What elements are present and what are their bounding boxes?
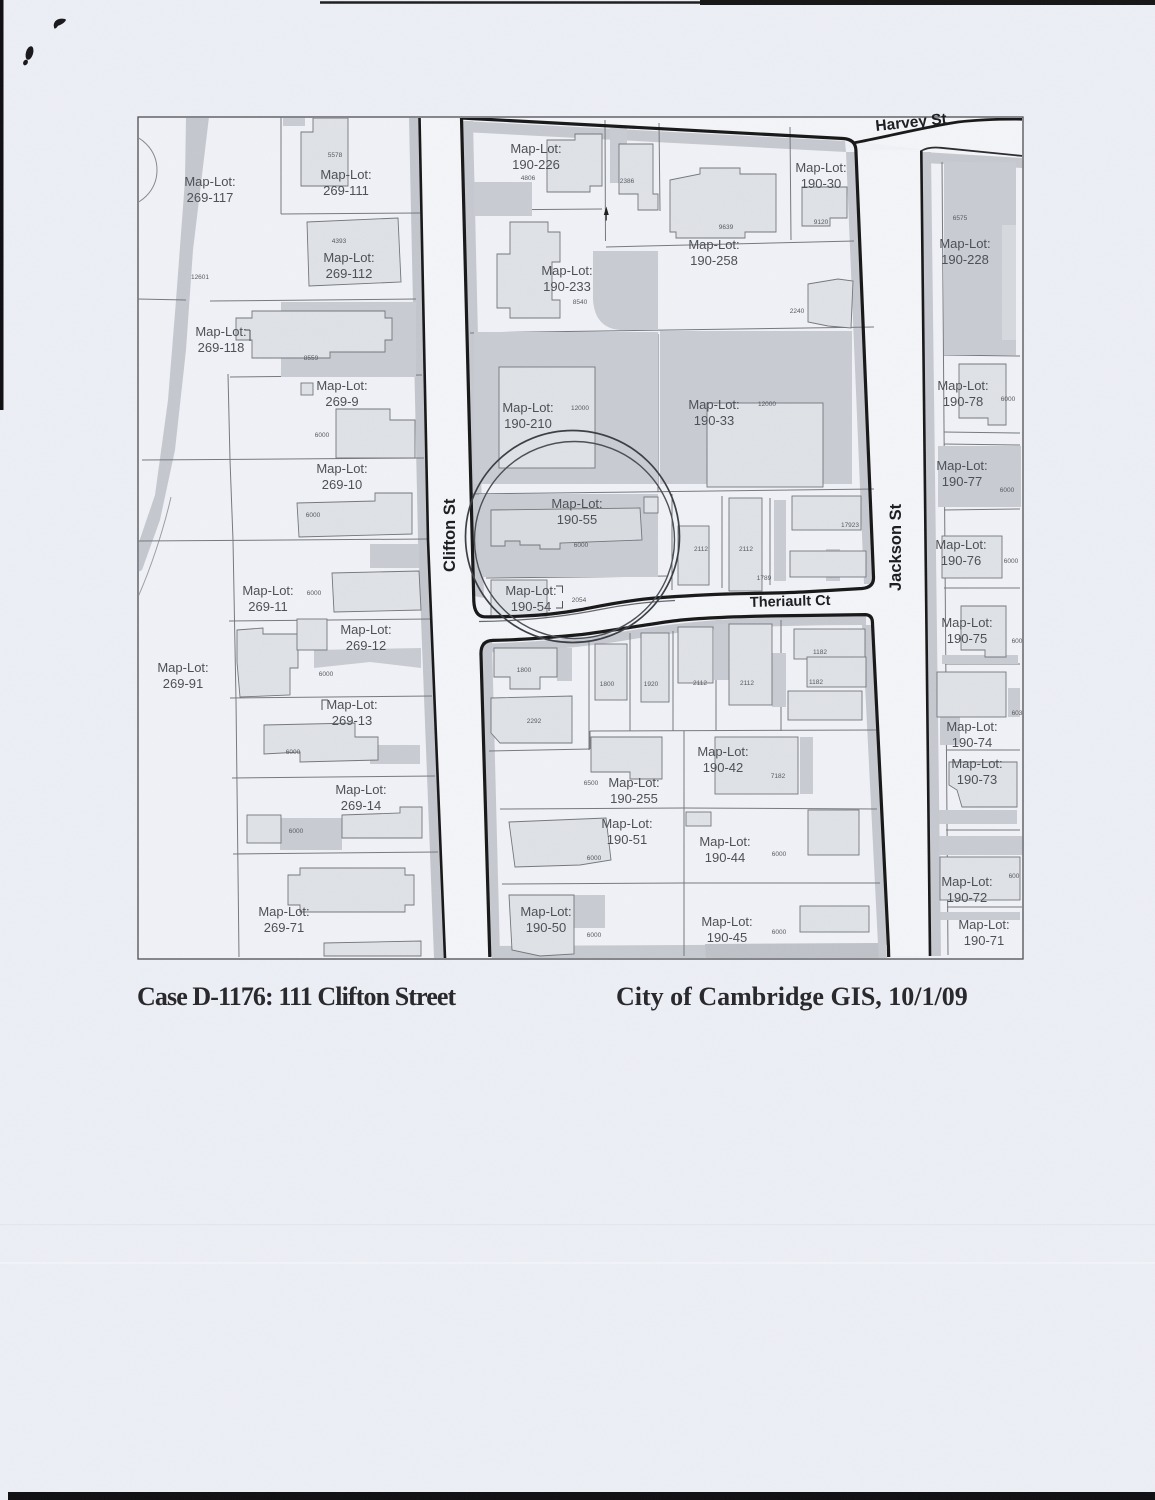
svg-text:1800: 1800 xyxy=(600,681,615,688)
svg-text:Map-Lot:190-226: Map-Lot:190-226 xyxy=(510,141,561,172)
svg-text:6575: 6575 xyxy=(953,215,968,222)
svg-text:Map-Lot:190-51: Map-Lot:190-51 xyxy=(601,816,652,847)
svg-text:2112: 2112 xyxy=(739,546,753,553)
svg-text:Map-Lot:269-12: Map-Lot:269-12 xyxy=(340,622,391,653)
svg-text:1182: 1182 xyxy=(809,679,823,686)
svg-text:2240: 2240 xyxy=(790,308,805,315)
svg-text:Map-Lot:190-44: Map-Lot:190-44 xyxy=(699,834,750,865)
svg-text:Map-Lot:190-76: Map-Lot:190-76 xyxy=(935,537,986,568)
svg-text:6000: 6000 xyxy=(772,929,787,936)
svg-text:6000: 6000 xyxy=(307,590,322,597)
svg-text:1182: 1182 xyxy=(813,649,827,656)
svg-text:6000: 6000 xyxy=(772,851,787,858)
svg-text:Map-Lot:190-74: Map-Lot:190-74 xyxy=(946,719,997,750)
svg-text:6000: 6000 xyxy=(587,932,602,939)
svg-text:1920: 1920 xyxy=(644,681,659,688)
svg-text:6000: 6000 xyxy=(1001,396,1016,403)
svg-text:Map-Lot:190-71: Map-Lot:190-71 xyxy=(958,917,1009,948)
svg-text:12601: 12601 xyxy=(191,274,209,281)
svg-text:6000: 6000 xyxy=(1004,558,1019,565)
svg-text:1789: 1789 xyxy=(757,575,772,582)
svg-text:Map-Lot:269-13: Map-Lot:269-13 xyxy=(326,697,377,728)
svg-text:2112: 2112 xyxy=(740,680,754,687)
svg-text:Map-Lot:190-233: Map-Lot:190-233 xyxy=(541,263,592,294)
svg-text:9120: 9120 xyxy=(814,219,829,226)
svg-text:Map-Lot:269-14: Map-Lot:269-14 xyxy=(335,782,386,813)
svg-text:Map-Lot:190-210: Map-Lot:190-210 xyxy=(502,400,553,431)
svg-text:8540: 8540 xyxy=(573,299,588,306)
svg-text:5578: 5578 xyxy=(328,152,343,159)
svg-text:Map-Lot:190-72: Map-Lot:190-72 xyxy=(941,874,992,905)
svg-text:City of Cambridge GIS, 10/1/09: City of Cambridge GIS, 10/1/09 xyxy=(616,982,968,1011)
svg-text:6000: 6000 xyxy=(574,542,589,549)
svg-text:Map-Lot:269-91: Map-Lot:269-91 xyxy=(157,660,208,691)
svg-text:6000: 6000 xyxy=(289,828,304,835)
svg-text:6000: 6000 xyxy=(306,512,321,519)
svg-text:603: 603 xyxy=(1012,710,1023,717)
svg-text:Jackson St: Jackson St xyxy=(887,503,905,591)
svg-text:Map-Lot:190-228: Map-Lot:190-228 xyxy=(939,236,990,267)
svg-text:4393: 4393 xyxy=(332,238,347,245)
svg-text:6000: 6000 xyxy=(319,671,334,678)
svg-text:Map-Lot:269-118: Map-Lot:269-118 xyxy=(195,324,246,355)
svg-text:8559: 8559 xyxy=(304,355,319,362)
svg-text:Map-Lot:190-255: Map-Lot:190-255 xyxy=(608,775,659,806)
svg-text:17923: 17923 xyxy=(841,522,859,529)
svg-text:Map-Lot:269-11: Map-Lot:269-11 xyxy=(242,583,293,614)
svg-text:600: 600 xyxy=(1012,638,1023,645)
svg-text:Map-Lot:190-54: Map-Lot:190-54 xyxy=(505,583,556,614)
svg-text:Case D-1176: 111 Clifton Stree: Case D-1176: 111 Clifton Street xyxy=(137,982,456,1011)
svg-text:Map-Lot:190-258: Map-Lot:190-258 xyxy=(688,237,739,268)
svg-text:Map-Lot:190-55: Map-Lot:190-55 xyxy=(551,496,602,527)
svg-text:Map-Lot:190-50: Map-Lot:190-50 xyxy=(520,904,571,935)
svg-text:Map-Lot:269-71: Map-Lot:269-71 xyxy=(258,904,309,935)
svg-text:Map-Lot:190-78: Map-Lot:190-78 xyxy=(937,378,988,409)
svg-text:6000: 6000 xyxy=(587,855,602,862)
svg-text:6000: 6000 xyxy=(286,749,301,756)
svg-text:6500: 6500 xyxy=(584,780,599,787)
svg-text:Map-Lot:269-10: Map-Lot:269-10 xyxy=(316,461,367,492)
svg-text:4806: 4806 xyxy=(521,175,536,182)
svg-text:600: 600 xyxy=(1009,873,1020,880)
svg-text:1800: 1800 xyxy=(517,667,532,674)
svg-text:Theriault Ct: Theriault Ct xyxy=(750,593,831,611)
svg-text:Map-Lot:190-73: Map-Lot:190-73 xyxy=(951,756,1002,787)
svg-text:2112: 2112 xyxy=(693,680,707,687)
svg-text:6000: 6000 xyxy=(1000,487,1015,494)
svg-text:Map-Lot:190-42: Map-Lot:190-42 xyxy=(697,744,748,775)
svg-text:Map-Lot:190-77: Map-Lot:190-77 xyxy=(936,458,987,489)
svg-text:9639: 9639 xyxy=(719,224,734,231)
svg-text:Map-Lot:269-117: Map-Lot:269-117 xyxy=(184,174,235,205)
svg-text:Map-Lot:269-112: Map-Lot:269-112 xyxy=(323,250,374,281)
svg-text:2292: 2292 xyxy=(527,718,542,725)
svg-text:Clifton St: Clifton St xyxy=(441,498,459,572)
svg-text:Map-Lot:269-111: Map-Lot:269-111 xyxy=(320,167,371,198)
svg-text:Map-Lot:190-75: Map-Lot:190-75 xyxy=(941,615,992,646)
svg-text:12000: 12000 xyxy=(758,401,776,408)
svg-text:12000: 12000 xyxy=(571,405,589,412)
svg-text:Map-Lot:190-45: Map-Lot:190-45 xyxy=(701,914,752,945)
svg-text:2054: 2054 xyxy=(572,597,587,604)
svg-text:6000: 6000 xyxy=(315,432,330,439)
svg-text:Map-Lot:190-30: Map-Lot:190-30 xyxy=(795,160,846,191)
svg-text:2386: 2386 xyxy=(620,178,635,185)
svg-text:2112: 2112 xyxy=(694,546,708,553)
svg-text:Map-Lot:190-33: Map-Lot:190-33 xyxy=(688,397,739,428)
svg-text:7182: 7182 xyxy=(771,773,786,780)
